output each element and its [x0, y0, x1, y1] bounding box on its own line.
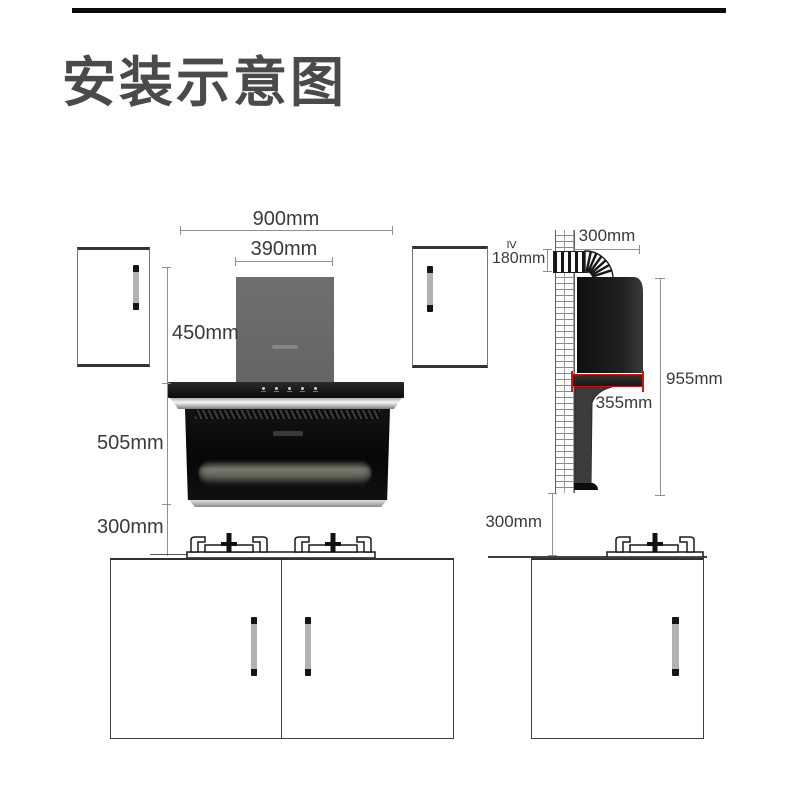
control-icon: [274, 387, 279, 392]
cabinet-handle: [305, 617, 311, 676]
hood-glass-window: [197, 460, 373, 486]
cabinet-handle: [427, 266, 433, 312]
dim-label-duct-offset: 300mm: [572, 226, 642, 246]
hood-front-body: [185, 409, 390, 500]
dim-cap: [543, 249, 552, 250]
hood-side-body: [577, 277, 643, 374]
control-icon: [261, 387, 266, 392]
dim-label-clearance-front: 300mm: [97, 516, 162, 539]
cabinet-handle: [133, 265, 139, 310]
dim-line-clearance-side: [552, 493, 553, 557]
base-cabinet-left: [110, 558, 454, 739]
dim-cap: [655, 495, 665, 496]
dim-label-overall-height: 955mm: [666, 369, 723, 389]
control-icon: [300, 387, 305, 392]
control-icon: [313, 387, 318, 392]
door-divider: [281, 560, 282, 738]
dim-line-overall-height: [660, 278, 661, 496]
pan-support: [616, 537, 630, 552]
dim-cap: [162, 267, 171, 268]
pan-support: [295, 537, 309, 552]
dim-line-chimney-width: [235, 261, 333, 262]
installation-diagram: 安装示意图 900mm 390mm 450mm 50: [0, 0, 800, 800]
dim-tick: [392, 226, 393, 235]
panel-foot: [574, 483, 598, 490]
dim-tick: [332, 257, 333, 266]
dim-label-duct-clearance: 180mm: [492, 250, 544, 268]
wall-cabinet-left: [77, 247, 150, 367]
dim-tick: [180, 226, 181, 235]
wall-cabinet-right: [412, 246, 488, 368]
control-icon: [287, 387, 292, 392]
dim-line-front-vertical: [167, 267, 168, 556]
pan-support: [253, 537, 267, 552]
pan-support: [680, 537, 694, 552]
dim-cap: [548, 493, 557, 494]
dim-cap: [162, 504, 171, 505]
section-divider-rule: [72, 8, 726, 13]
dim-label-body-height: 505mm: [97, 432, 162, 455]
countertop-ledge-left: [150, 554, 188, 555]
hood-control-panel-bar: [168, 382, 404, 398]
page-title: 安装示意图: [62, 54, 347, 113]
hood-light-strip: [170, 398, 402, 409]
dim-label-clearance-side: 300mm: [480, 512, 542, 532]
dim-line-overall-width: [180, 230, 393, 231]
dim-tick: [639, 245, 640, 254]
pan-support: [191, 537, 205, 552]
dim-label-chimney-width: 390mm: [244, 238, 324, 261]
vent-grille: [195, 410, 380, 419]
dim-label-chimney-height: 450mm: [172, 322, 239, 345]
touch-control-panel: [261, 387, 318, 392]
gas-stove-side: [604, 529, 706, 557]
hood-brand-mark: [273, 431, 303, 436]
dim-cap: [162, 383, 171, 384]
chimney-brand-mark: [272, 345, 298, 349]
base-cabinet-right: [531, 558, 704, 739]
hood-chimney: [236, 277, 334, 382]
hood-base-strip: [189, 500, 387, 507]
dim-label-min-symbol: ≥: [504, 240, 521, 248]
cabinet-handle: [672, 617, 679, 676]
dim-label-body-depth: 355mm: [590, 393, 658, 413]
cabinet-handle: [251, 617, 257, 676]
dim-tick: [235, 257, 236, 266]
dim-tick-red: [571, 371, 573, 392]
dim-cap: [543, 271, 552, 272]
pan-support: [357, 537, 371, 552]
dim-cap: [655, 278, 665, 279]
dim-label-overall-width: 900mm: [246, 208, 326, 231]
dim-line-duct-clearance: [547, 249, 548, 272]
gas-stove-front: [185, 529, 377, 559]
hood-bottom-plate-355: [572, 374, 644, 387]
